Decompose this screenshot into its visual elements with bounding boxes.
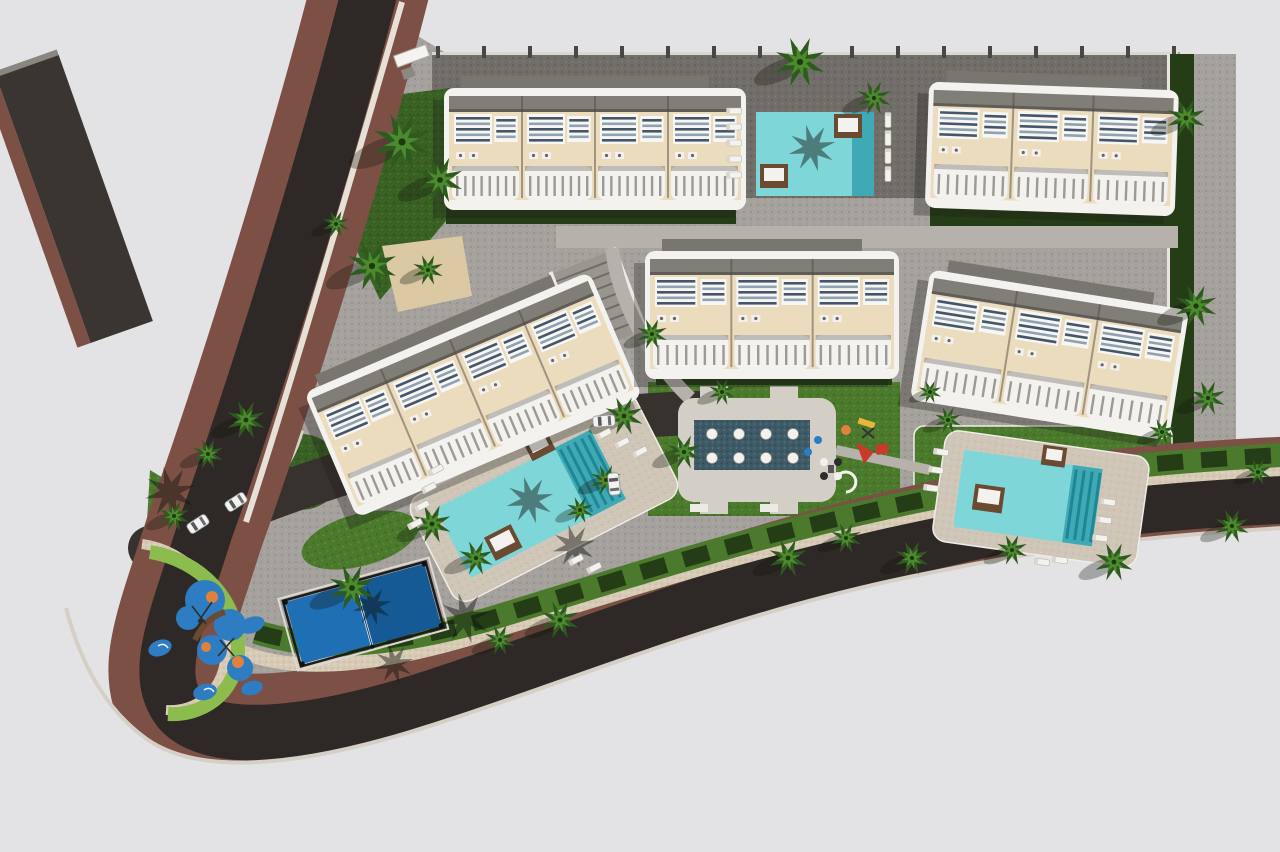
sun-lounger	[885, 113, 891, 128]
townhouse-block	[433, 76, 746, 218]
upper-walkway	[556, 226, 1178, 248]
townhouse-block	[634, 239, 899, 387]
sun-lounger	[885, 167, 891, 182]
bench-1	[690, 504, 708, 512]
sun-lounger	[727, 140, 742, 146]
sun-lounger	[885, 131, 891, 146]
parked-car	[593, 415, 616, 428]
sun-lounger	[727, 108, 742, 114]
sun-lounger	[885, 149, 891, 164]
sun-lounger	[727, 156, 742, 162]
parked-car	[607, 472, 620, 495]
site-plan-rendering	[0, 0, 1280, 852]
sun-lounger	[727, 124, 742, 130]
render-canvas	[0, 0, 1280, 852]
sun-lounger	[727, 172, 742, 178]
townhouse-block	[914, 69, 1180, 224]
bench-2	[760, 504, 778, 512]
top-pool	[726, 98, 934, 198]
